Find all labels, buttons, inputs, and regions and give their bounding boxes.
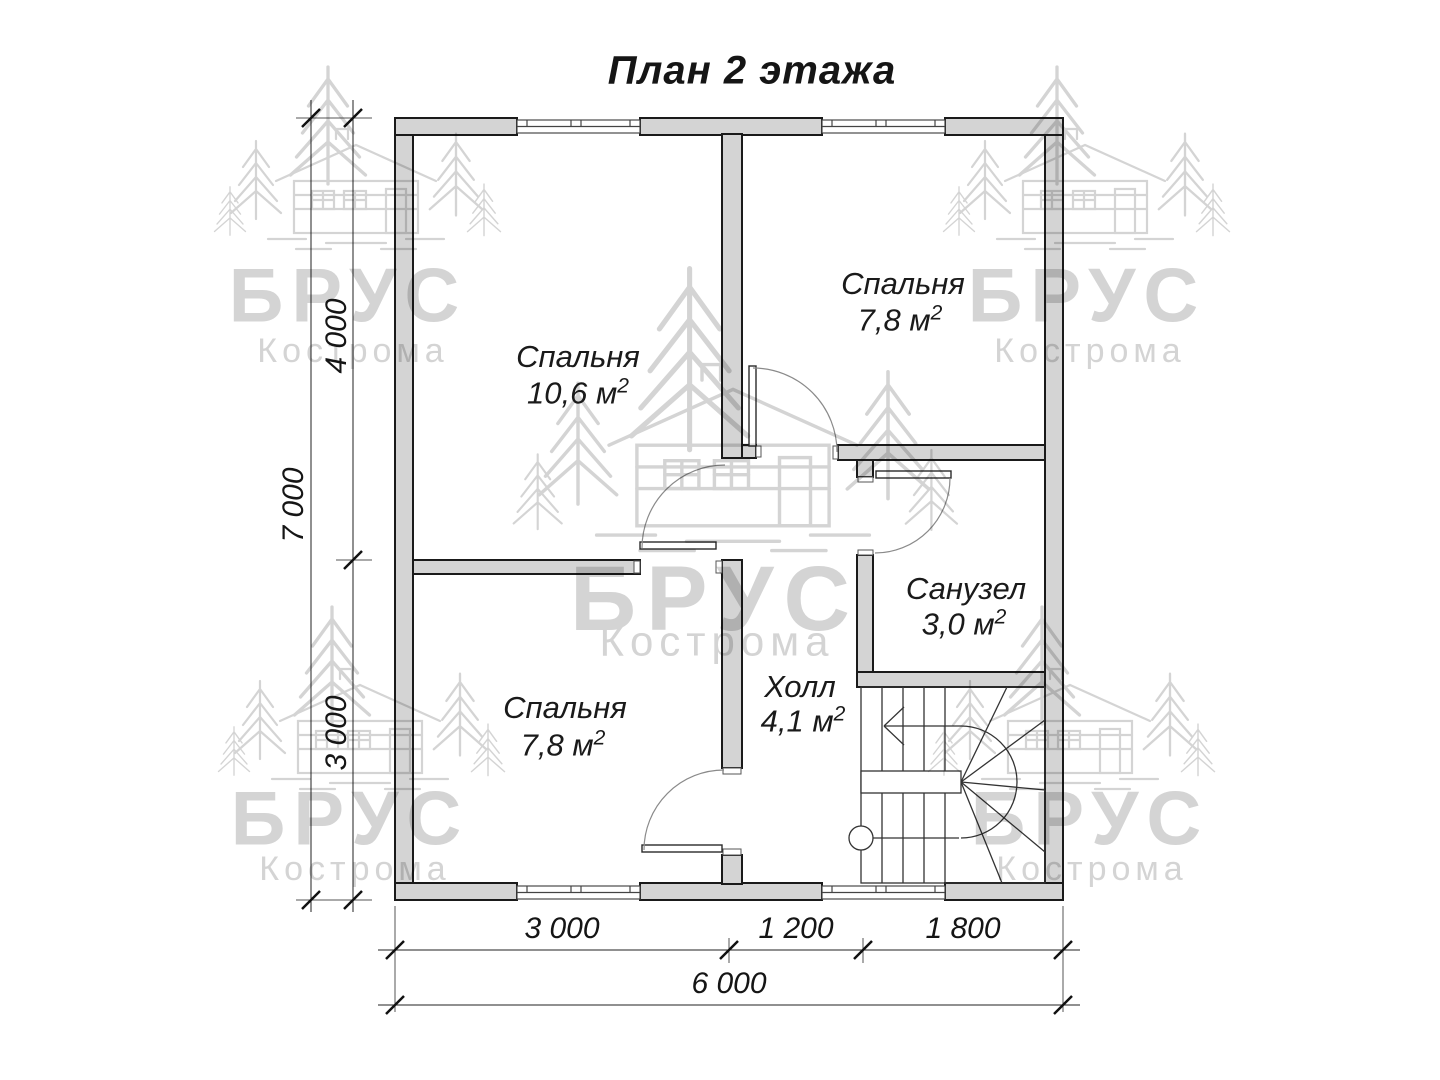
area-value: 7,8 м — [858, 303, 931, 338]
area-superscript: 2 — [995, 605, 1007, 628]
room-area-bathroom: 3,0 м2 — [922, 605, 1007, 642]
room-area-bedroom-bottom-left: 7,8 м2 — [521, 726, 606, 763]
floor-plan-page: БРУС Кострома БРУС Кострома БРУС Костром… — [0, 0, 1440, 1080]
dim-label-left-upper: 4 000 — [320, 298, 354, 373]
room-area-bedroom-top-right: 7,8 м2 — [858, 301, 943, 338]
dim-label-bottom-right: 1 800 — [925, 912, 1000, 946]
area-superscript: 2 — [834, 702, 846, 725]
room-label-bedroom-main: Спальня — [516, 339, 640, 375]
dim-label-left-total: 7 000 — [277, 467, 311, 542]
room-label-bathroom: Санузел — [906, 571, 1026, 607]
page-title: План 2 этажа — [608, 49, 897, 94]
area-value: 3,0 м — [922, 607, 995, 642]
area-value: 7,8 м — [521, 728, 594, 763]
area-value: 4,1 м — [761, 704, 834, 739]
area-value: 10,6 м — [527, 376, 617, 411]
dim-label-bottom-left: 3 000 — [524, 912, 599, 946]
dim-label-left-lower: 3 000 — [320, 695, 354, 770]
labels-layer: План 2 этажа Спальня 10,6 м2 Спальня 7,8… — [0, 0, 1440, 1080]
dim-label-bottom-total: 6 000 — [691, 967, 766, 1001]
room-area-hall: 4,1 м2 — [761, 702, 846, 739]
area-superscript: 2 — [594, 726, 606, 749]
area-superscript: 2 — [617, 374, 629, 397]
room-label-bedroom-bottom-left: Спальня — [503, 690, 627, 726]
room-label-bedroom-top-right: Спальня — [841, 266, 965, 302]
area-superscript: 2 — [931, 301, 943, 324]
dim-label-bottom-middle: 1 200 — [758, 912, 833, 946]
room-label-hall: Холл — [764, 669, 836, 705]
room-area-bedroom-main: 10,6 м2 — [527, 374, 629, 411]
